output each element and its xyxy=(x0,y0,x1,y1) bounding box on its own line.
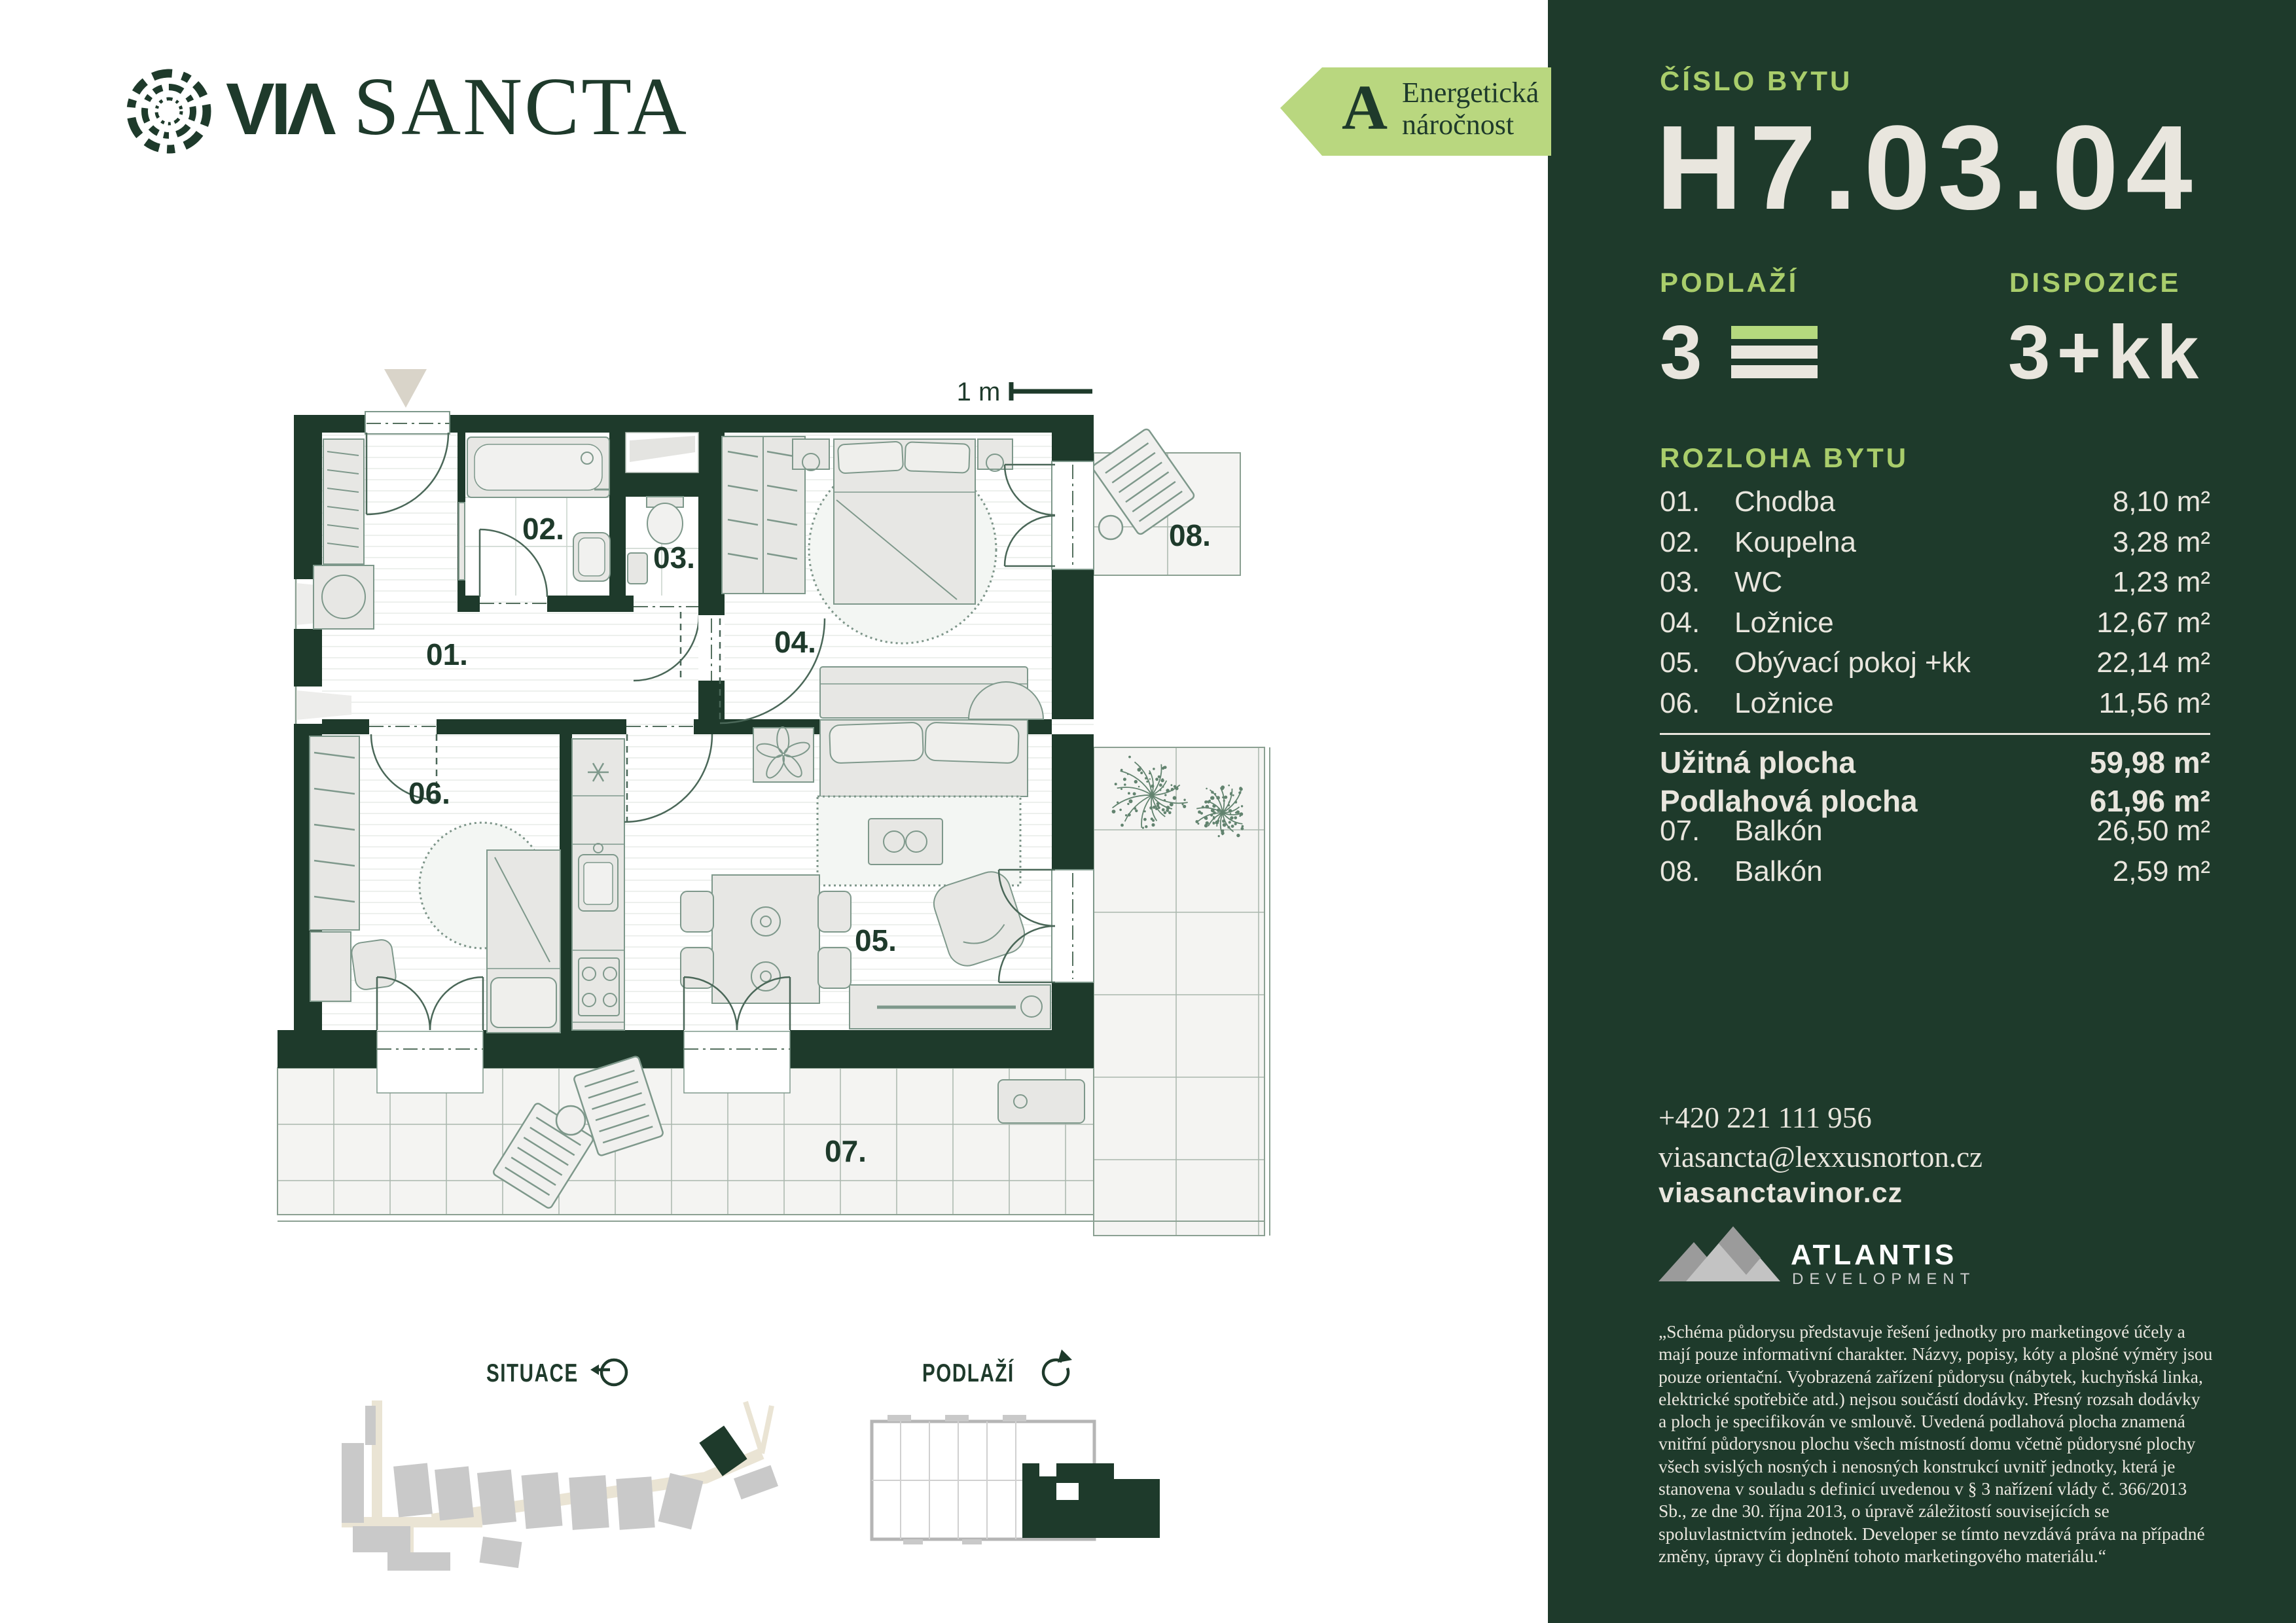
svg-text:1 m: 1 m xyxy=(957,378,1001,406)
svg-text:01.: 01. xyxy=(426,637,468,671)
svg-text:03.: 03. xyxy=(653,541,695,575)
svg-text:02.: 02. xyxy=(522,512,564,546)
svg-text:06.: 06. xyxy=(408,776,450,810)
svg-text:08.: 08. xyxy=(1169,518,1211,552)
svg-text:07.: 07. xyxy=(825,1134,867,1168)
svg-text:04.: 04. xyxy=(774,625,816,659)
svg-text:05.: 05. xyxy=(855,923,897,957)
